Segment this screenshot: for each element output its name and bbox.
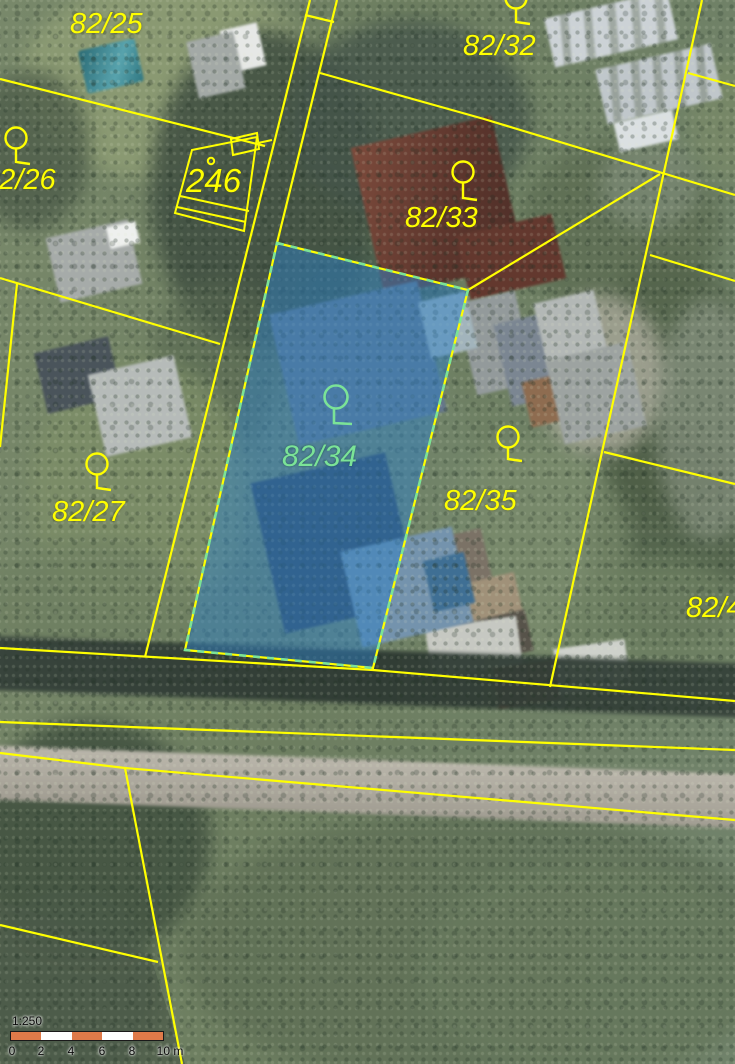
boundary-line xyxy=(0,284,17,447)
parcel-marker-82-26-icon xyxy=(6,128,31,165)
scale-tick: 4 xyxy=(68,1044,75,1058)
boundary-line xyxy=(0,79,265,146)
scale-tick: 10 m xyxy=(157,1044,184,1058)
parcel-label-82-27: 82/27 xyxy=(52,498,125,527)
boundary-line xyxy=(468,174,660,290)
boundary-line xyxy=(0,753,735,820)
scale-tick: 2 xyxy=(38,1044,45,1058)
scale-tick: 6 xyxy=(99,1044,106,1058)
parcel-label-82-4: 82/4 xyxy=(686,594,735,623)
boundary-line xyxy=(604,452,735,484)
scale-ratio: 1:250 xyxy=(12,1014,42,1028)
parcel-marker-82-33-icon xyxy=(453,162,478,201)
boundary-line xyxy=(550,0,702,687)
parcel-marker-82-27-icon xyxy=(87,454,112,491)
parcel-marker-82-32-icon xyxy=(506,0,531,24)
scale-tick: 8 xyxy=(129,1044,136,1058)
boundary-line xyxy=(688,73,735,86)
scale-segment xyxy=(11,1032,41,1040)
parcel-label-82-33: 82/33 xyxy=(405,204,478,233)
boundary-line xyxy=(0,925,158,962)
boundary-line xyxy=(305,15,334,22)
parcel-label-82-35: 82/35 xyxy=(444,487,517,516)
scale-segment xyxy=(102,1032,132,1040)
boundary-line xyxy=(0,278,220,344)
cadastral-map-viewport[interactable]: 82/25 82/26 246 82/32 82/33 82/27 82/34 … xyxy=(0,0,735,1064)
parcel-label-82-25: 82/25 xyxy=(70,10,143,39)
scale-tick: 0 xyxy=(9,1044,16,1058)
scale-segment xyxy=(41,1032,71,1040)
scale-segment xyxy=(133,1032,163,1040)
boundary-line xyxy=(650,255,735,281)
parcel-label-82-32: 82/32 xyxy=(463,32,536,61)
boundary-line xyxy=(277,0,337,243)
building-label-246: 246 xyxy=(186,164,241,197)
parcel-label-82-26: 82/26 xyxy=(0,166,56,195)
boundary-line xyxy=(0,722,735,750)
parcel-label-82-34: 82/34 xyxy=(282,442,357,472)
cadastral-overlay xyxy=(0,0,735,1064)
scale-bar: 1:250 0 2 4 6 8 10 m xyxy=(10,1014,200,1062)
scale-segment xyxy=(72,1032,102,1040)
parcel-marker-82-35-icon xyxy=(498,427,523,462)
scale-bar-segments xyxy=(10,1031,164,1041)
